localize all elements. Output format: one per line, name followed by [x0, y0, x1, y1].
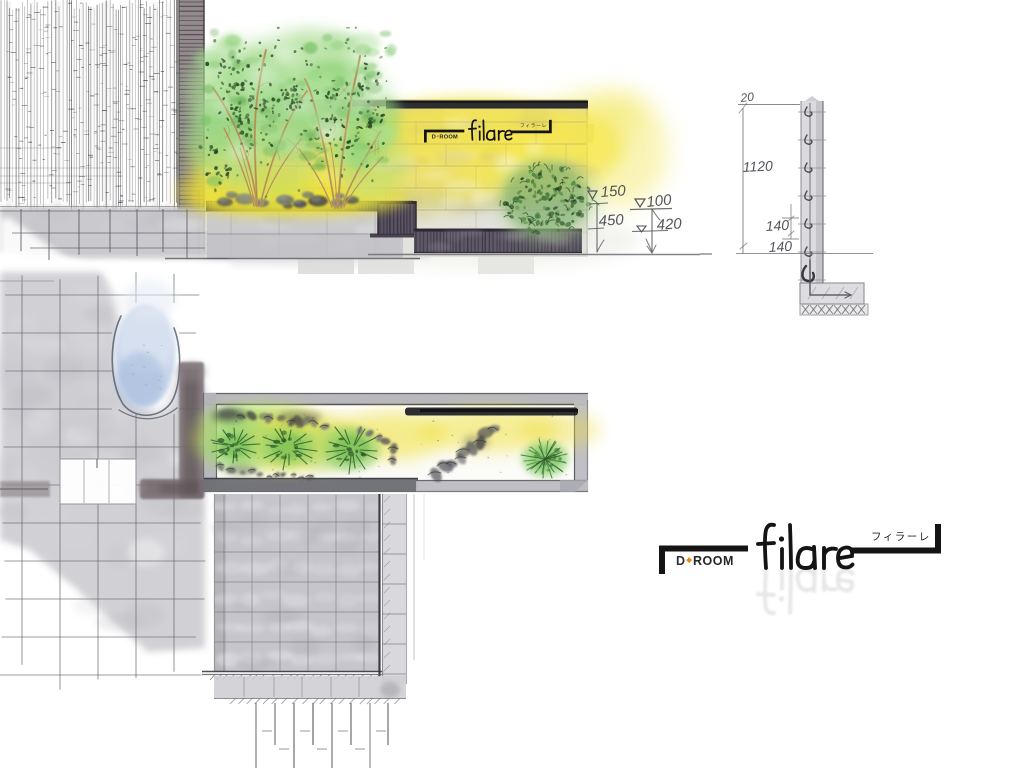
- svg-text:1120: 1120: [742, 157, 773, 175]
- svg-text:150: 150: [600, 182, 627, 201]
- svg-text:450: 450: [598, 211, 625, 230]
- svg-text:140: 140: [765, 217, 789, 234]
- svg-text:140: 140: [768, 238, 792, 255]
